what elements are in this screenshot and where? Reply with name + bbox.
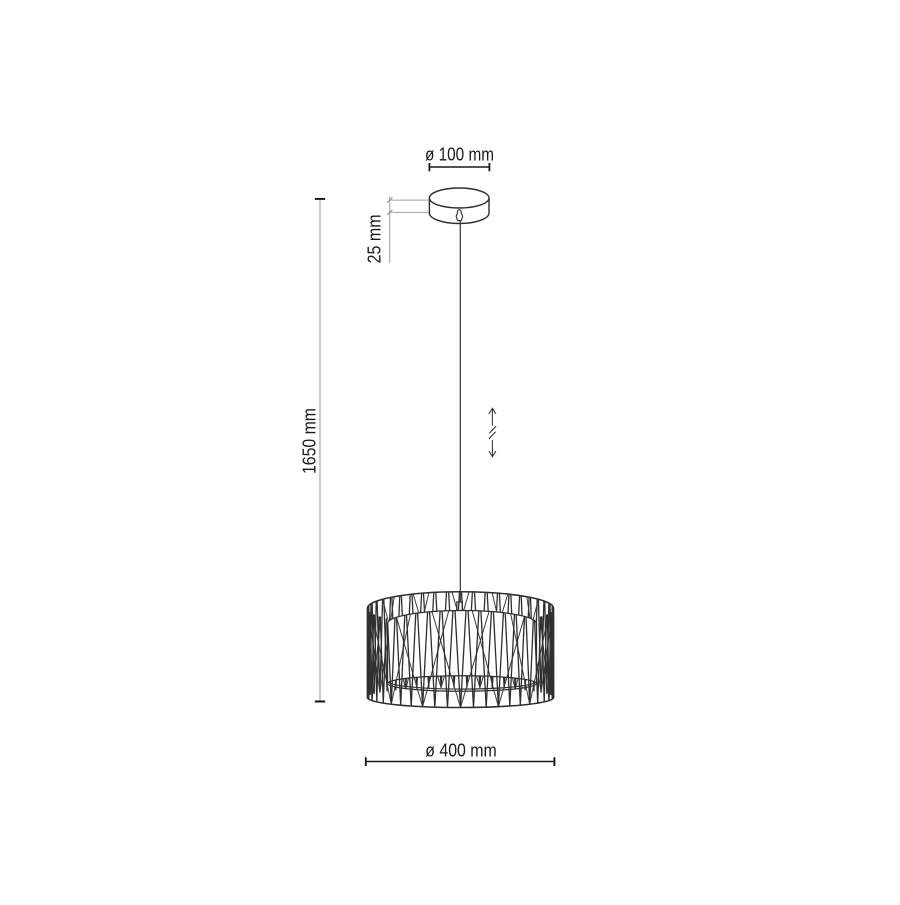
svg-text:25 mm: 25 mm	[364, 214, 385, 263]
svg-text:ø 400 mm: ø 400 mm	[425, 740, 497, 761]
svg-text:ø 100 mm: ø 100 mm	[425, 144, 494, 165]
svg-text:1650 mm: 1650 mm	[299, 408, 320, 474]
